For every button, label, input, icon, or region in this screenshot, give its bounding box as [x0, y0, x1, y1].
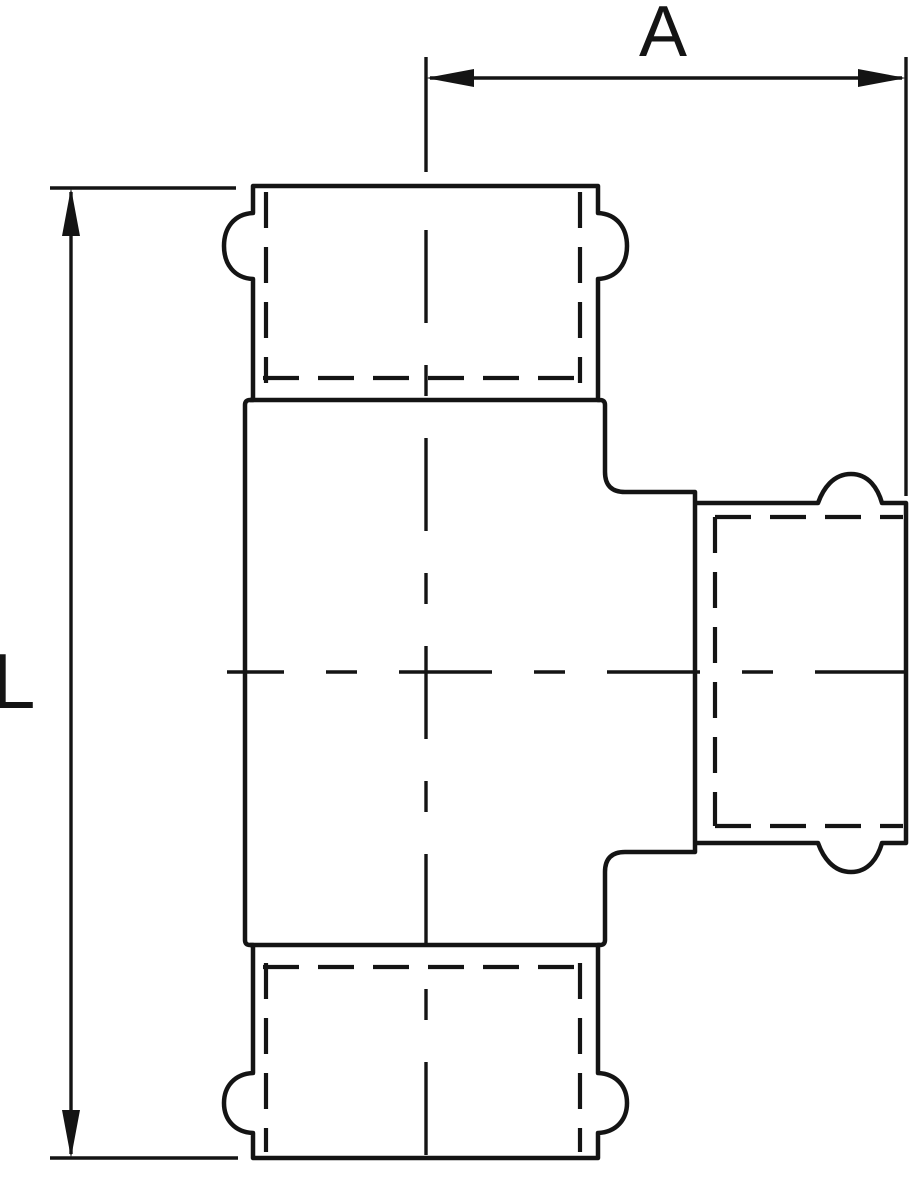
dim-l-arrowhead-bottom	[62, 1110, 80, 1158]
dim-l-label: L	[0, 642, 35, 720]
dim-a-label: A	[634, 0, 692, 68]
drawing-canvas: A L	[0, 0, 917, 1181]
dim-a-arrowhead-right	[858, 69, 906, 87]
tee-fitting-drawing	[0, 0, 917, 1181]
dim-l-arrowhead-top	[62, 188, 80, 236]
dim-a-arrowhead-left	[426, 69, 474, 87]
